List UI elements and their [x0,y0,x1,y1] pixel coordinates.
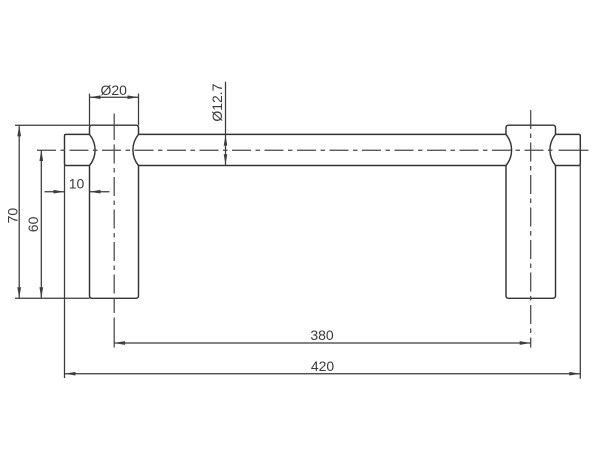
svg-text:60: 60 [25,216,41,232]
svg-text:380: 380 [310,327,334,343]
svg-text:70: 70 [4,208,20,224]
svg-text:Ø20: Ø20 [100,82,127,98]
svg-text:10: 10 [69,176,85,192]
svg-text:420: 420 [311,358,335,374]
svg-text:Ø12.7: Ø12.7 [209,83,225,121]
